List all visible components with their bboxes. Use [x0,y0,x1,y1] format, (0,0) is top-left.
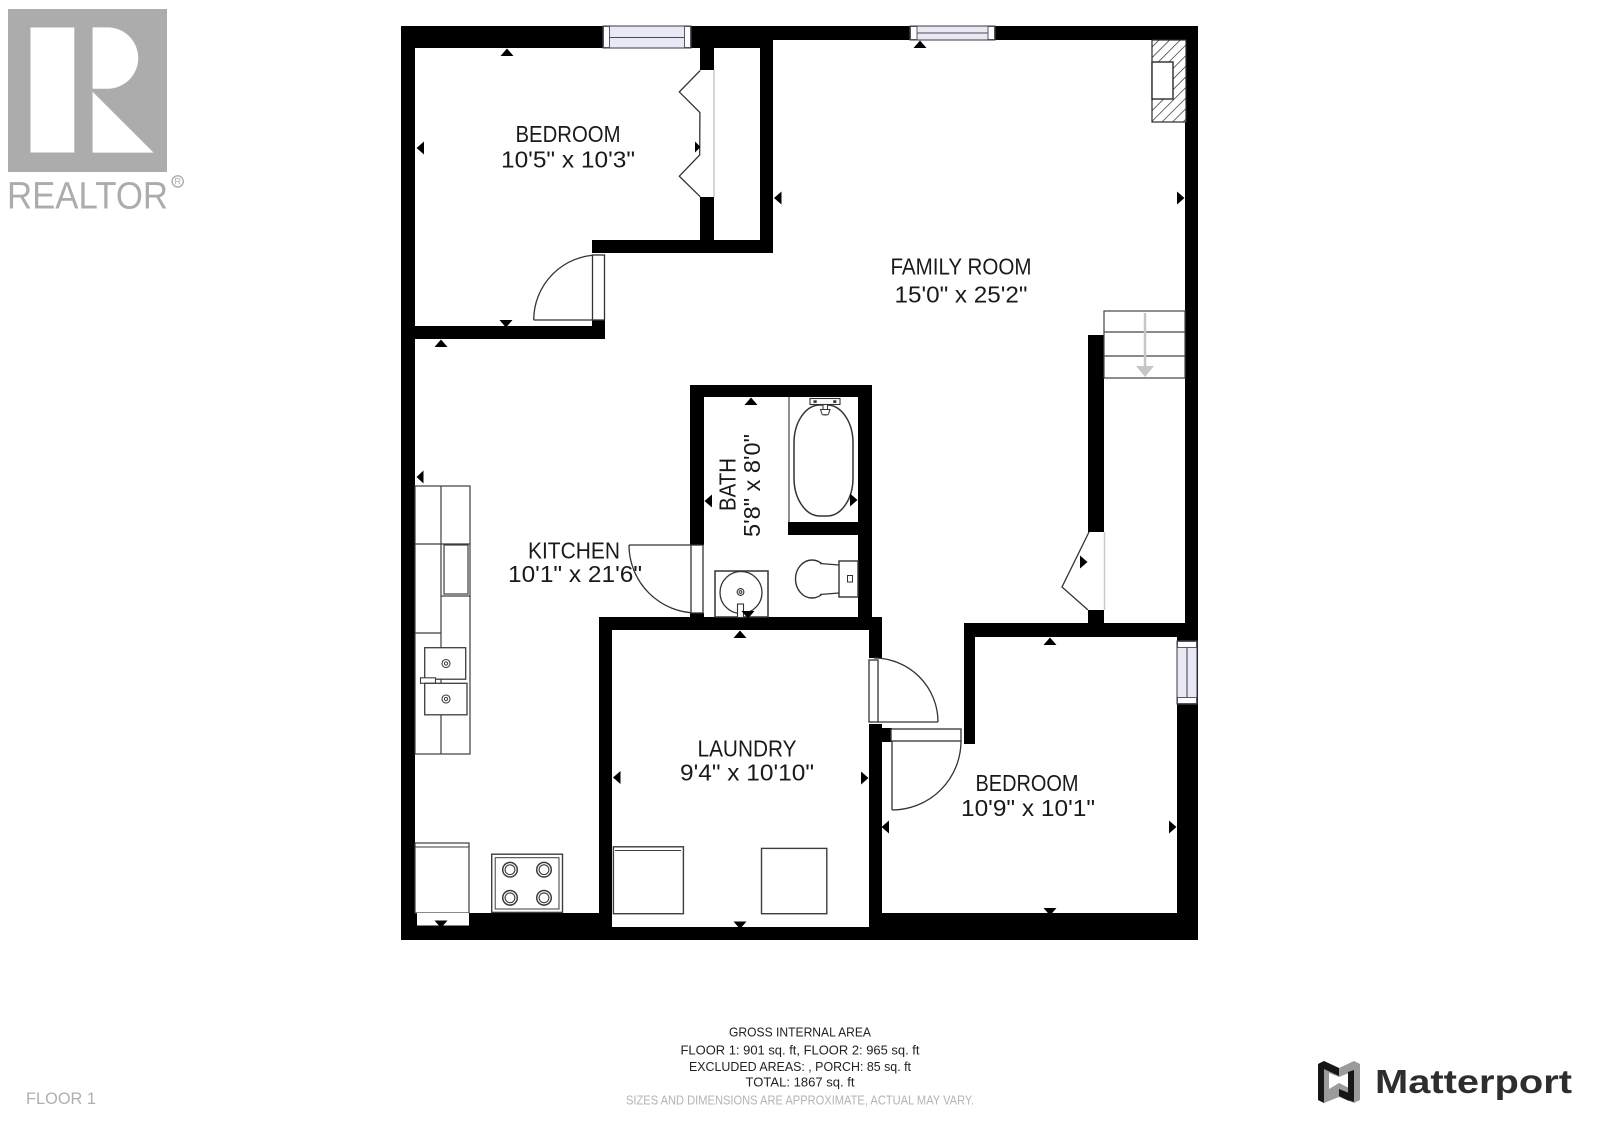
svg-text:10'9" x 10'1": 10'9" x 10'1" [961,795,1095,821]
svg-text:Matterport: Matterport [1375,1063,1572,1100]
svg-text:BEDROOM: BEDROOM [516,121,621,147]
svg-text:TOTAL: 1867 sq. ft: TOTAL: 1867 sq. ft [746,1076,856,1090]
svg-text:FAMILY ROOM: FAMILY ROOM [891,254,1032,280]
svg-text:10'5" x 10'3": 10'5" x 10'3" [501,146,635,172]
svg-text:FLOOR 1: FLOOR 1 [26,1090,96,1108]
svg-text:5'8" x 8'0": 5'8" x 8'0" [739,434,765,537]
svg-text:FLOOR 1: 901 sq. ft, FLOOR 2:: FLOOR 1: 901 sq. ft, FLOOR 2: 965 sq. ft [681,1044,921,1058]
svg-text:R: R [174,177,181,187]
svg-text:EXCLUDED AREAS: , PORCH: 85 sq: EXCLUDED AREAS: , PORCH: 85 sq. ft [689,1060,912,1074]
svg-text:KITCHEN: KITCHEN [528,537,620,563]
svg-text:15'0" x 25'2": 15'0" x 25'2" [895,281,1028,307]
svg-text:BEDROOM: BEDROOM [976,770,1079,796]
svg-text:9'4" x 10'10": 9'4" x 10'10" [680,759,814,785]
svg-text:SIZES AND DIMENSIONS ARE APPRO: SIZES AND DIMENSIONS ARE APPROXIMATE, AC… [626,1093,974,1107]
svg-text:LAUNDRY: LAUNDRY [698,736,797,762]
svg-text:BATH: BATH [715,458,741,511]
svg-text:REALTOR: REALTOR [7,175,168,217]
svg-text:10'1" x 21'6": 10'1" x 21'6" [508,561,642,587]
svg-text:GROSS INTERNAL AREA: GROSS INTERNAL AREA [729,1026,872,1040]
